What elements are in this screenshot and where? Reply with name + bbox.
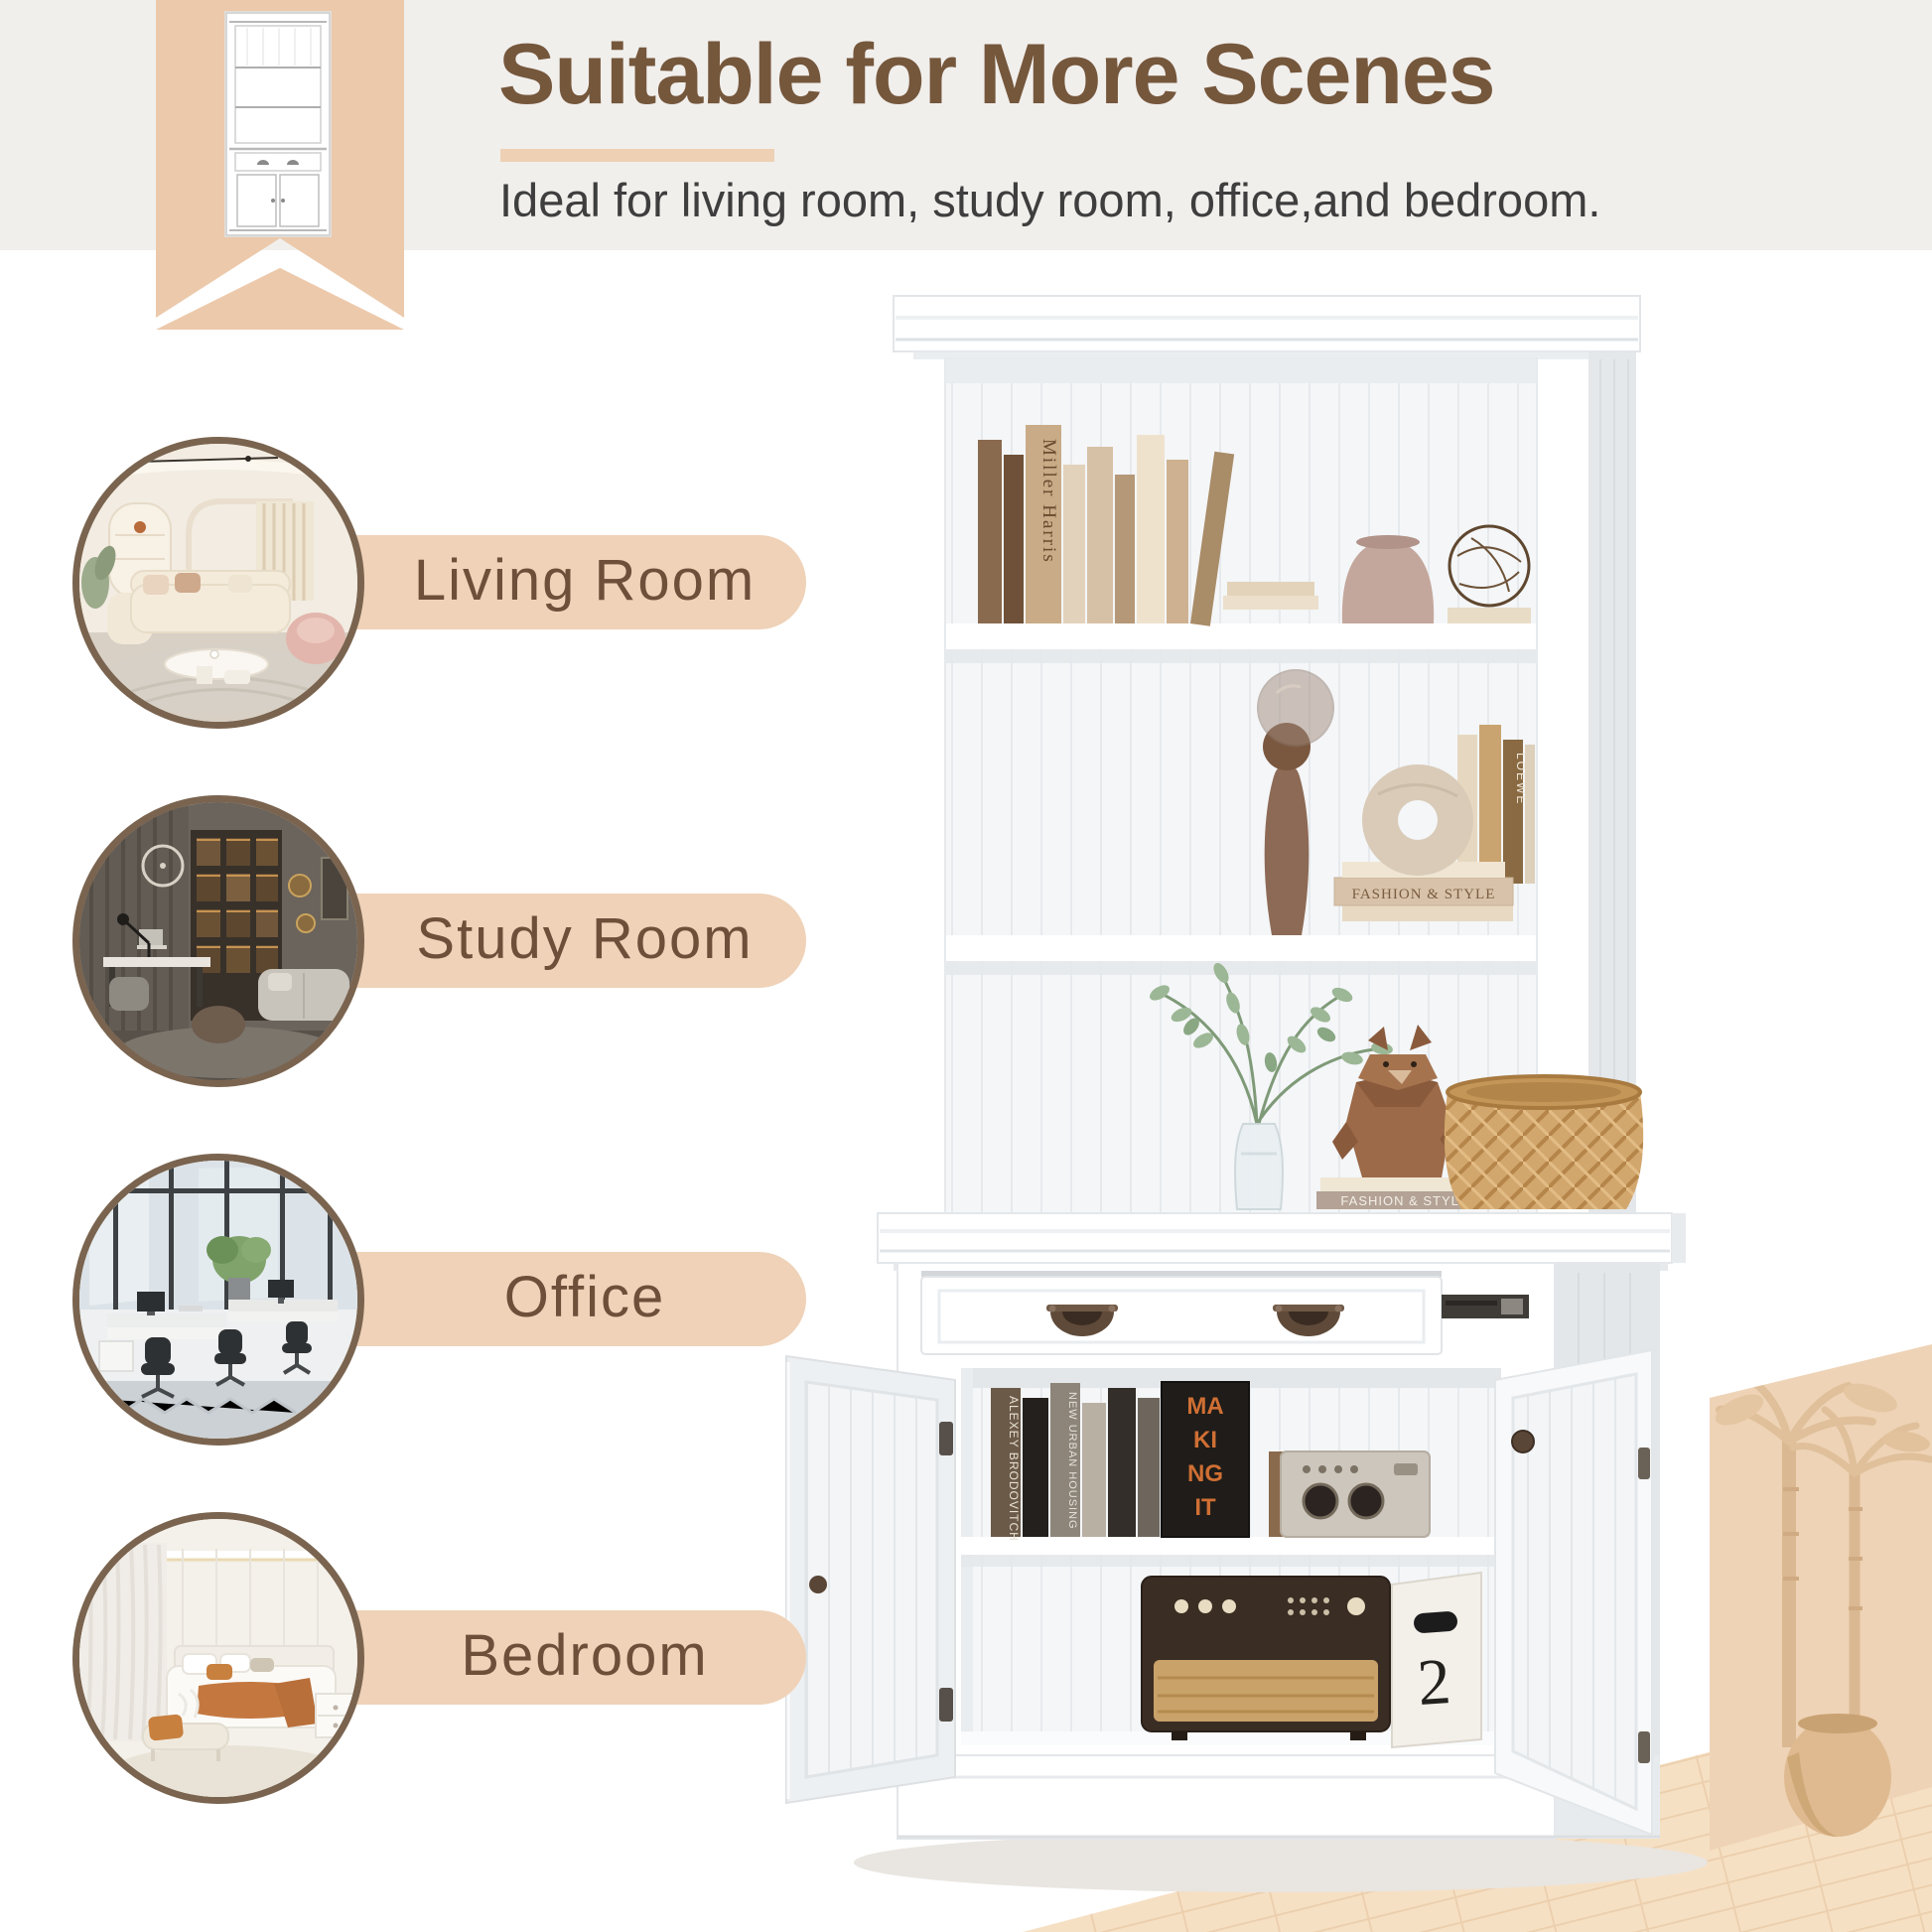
svg-text:IT: IT xyxy=(1194,1494,1216,1521)
svg-text:KI: KI xyxy=(1193,1427,1217,1453)
cabinet-shadow xyxy=(854,1833,1708,1892)
scene-photo-living-room xyxy=(72,437,364,729)
scene-photo-study-room xyxy=(72,795,364,1087)
title-underline xyxy=(500,149,774,162)
book-spine-fashion-style: FASHION & STYLE xyxy=(1352,887,1496,902)
bedroom-illustration xyxy=(79,1519,357,1797)
cabinet-door-right xyxy=(1495,1350,1652,1835)
door-knob-left xyxy=(809,1576,827,1593)
svg-text:MA: MA xyxy=(1186,1393,1223,1420)
base-cabinet: ALEXEY BRODOVITCH NEW URBAN HOUSING MA K… xyxy=(786,1213,1686,1839)
cabinet-books: ALEXEY BRODOVITCH NEW URBAN HOUSING MA K… xyxy=(991,1382,1249,1542)
door-hinge xyxy=(1638,1448,1650,1479)
scene-photo-bedroom xyxy=(72,1512,364,1804)
cabinet-door-left xyxy=(786,1356,955,1803)
scene-label-text: Bedroom xyxy=(363,1621,806,1688)
scene-photo-office xyxy=(72,1154,364,1446)
book-spine-new-urban-housing: NEW URBAN HOUSING xyxy=(1066,1392,1078,1530)
scene-label-text: Study Room xyxy=(363,904,806,971)
door-hinge xyxy=(1638,1731,1650,1763)
scene-label-text: Living Room xyxy=(363,546,806,613)
door-hinge xyxy=(939,1422,953,1455)
study-room-illustration xyxy=(79,802,357,1080)
vintage-radio xyxy=(1142,1577,1390,1740)
storage-box: 2 xyxy=(1392,1573,1481,1747)
page: { "colors": { "page_bg": "#ffffff", "top… xyxy=(0,0,1932,1932)
drawer xyxy=(921,1271,1529,1354)
small-amplifier xyxy=(1269,1451,1430,1537)
bookcase-thumbnail-icon xyxy=(225,12,331,236)
door-knob-right xyxy=(1512,1431,1534,1452)
scene-label-text: Office xyxy=(363,1263,806,1329)
book-spine-alexey-brodovitch: ALEXEY BRODOVITCH xyxy=(1007,1396,1021,1542)
book-spine-miller-harris: Miller Harris xyxy=(1038,439,1059,564)
book-spine-fashion-style-lower: FASHION & STYLE xyxy=(1340,1193,1468,1208)
page-subtitle: Ideal for living room, study room, offic… xyxy=(499,173,1600,227)
office-illustration xyxy=(79,1161,357,1439)
living-room-illustration xyxy=(79,444,357,722)
box-number: 2 xyxy=(1415,1645,1452,1720)
svg-text:NG: NG xyxy=(1187,1460,1223,1487)
page-title: Suitable for More Scenes xyxy=(498,26,1495,124)
door-hinge xyxy=(939,1688,953,1722)
